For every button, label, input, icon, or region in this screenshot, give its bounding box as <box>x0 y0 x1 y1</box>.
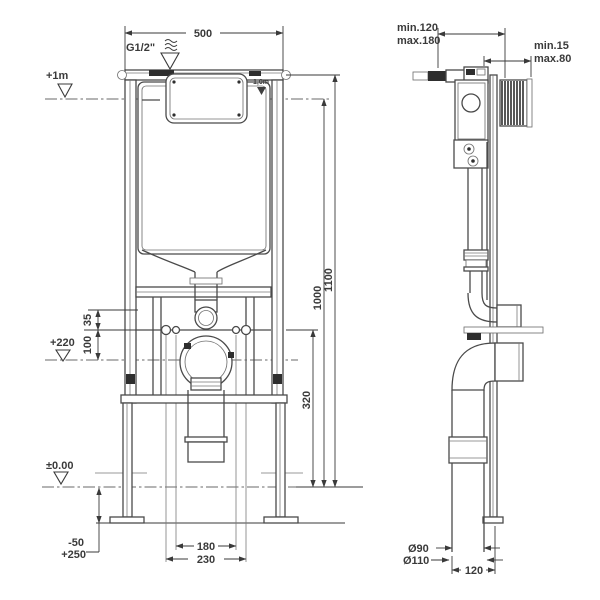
level-220-icon <box>56 350 70 361</box>
adjustable-foot-left <box>110 517 144 523</box>
wall-min-label: min.15 <box>534 40 569 52</box>
flush-and-drain <box>180 272 234 462</box>
wall-bracket-block <box>500 79 532 127</box>
foot-minus-label: -50 <box>68 537 84 549</box>
dim-500-label: 500 <box>194 28 212 40</box>
dim-1100-label: 1100 <box>323 268 335 292</box>
drain-pipe <box>452 463 484 552</box>
wc-fixing-bolt <box>173 327 180 334</box>
support-shelf <box>464 327 543 333</box>
dim-depth-120: 120 <box>452 526 495 577</box>
wc-fixing-bolt <box>242 326 251 335</box>
dim-320-label: 320 <box>301 391 313 409</box>
dim-120-label: 120 <box>465 565 483 577</box>
dim-100-label: 100 <box>82 336 94 354</box>
side-view: min.120 max.180 min.15 max.80 Ø90 Ø110 <box>397 22 571 577</box>
flush-plate-window <box>166 74 247 123</box>
rod-max-label: max.180 <box>397 35 440 47</box>
wall-max-label: max.80 <box>534 53 571 65</box>
dim-wall-range: min.15 max.80 <box>484 40 571 77</box>
supply-position-icon <box>161 53 179 69</box>
water-supply-icon <box>165 40 177 51</box>
level-1m-icon <box>58 84 72 97</box>
level-1m-label: +1m <box>46 70 69 82</box>
level-marker-1m: +1m <box>46 70 72 97</box>
level-marker-220: +220 <box>50 337 75 361</box>
level-220-label: +220 <box>50 337 75 349</box>
wc-fixing-bolt <box>162 326 171 335</box>
level-zero-icon <box>54 472 68 484</box>
wc-outlet-stub <box>497 305 521 327</box>
adjustable-foot-right <box>264 517 298 523</box>
dim-pipe-diameters: Ø90 Ø110 <box>403 543 503 567</box>
dim-35-label: 35 <box>82 314 94 326</box>
flush-bend <box>464 293 543 340</box>
dim-bolt-spacing: 180 230 <box>166 541 246 566</box>
level-zero-label: ±0.00 <box>46 460 73 472</box>
cistern-side-hole <box>462 94 480 112</box>
dim-heights: 320 1000 1100 <box>286 75 340 487</box>
foot-plus-label: +250 <box>61 549 86 561</box>
dim-foot-adjust: -50 +250 <box>61 488 99 561</box>
dia-90-label: Ø90 <box>408 543 429 555</box>
frame-legs <box>110 403 298 523</box>
wc-frame-drawing: 1,0m <box>0 0 600 600</box>
wc-fixing-bolt <box>233 327 240 334</box>
front-view: 1,0m <box>42 26 363 566</box>
rod-min-label: min.120 <box>397 22 438 34</box>
dim-180-label: 180 <box>197 541 215 553</box>
technical-drawing: 1,0m <box>0 0 600 600</box>
level-marker-zero: ±0.00 <box>46 460 73 484</box>
dim-230-label: 230 <box>197 554 215 566</box>
mounting-hole-left <box>118 71 127 80</box>
cistern-profile <box>454 80 488 300</box>
water-supply: G1/2" <box>126 40 179 70</box>
dia-110-label: Ø110 <box>403 555 429 567</box>
water-level-label: 1,0m <box>253 79 269 86</box>
water-supply-label: G1/2" <box>126 42 155 54</box>
